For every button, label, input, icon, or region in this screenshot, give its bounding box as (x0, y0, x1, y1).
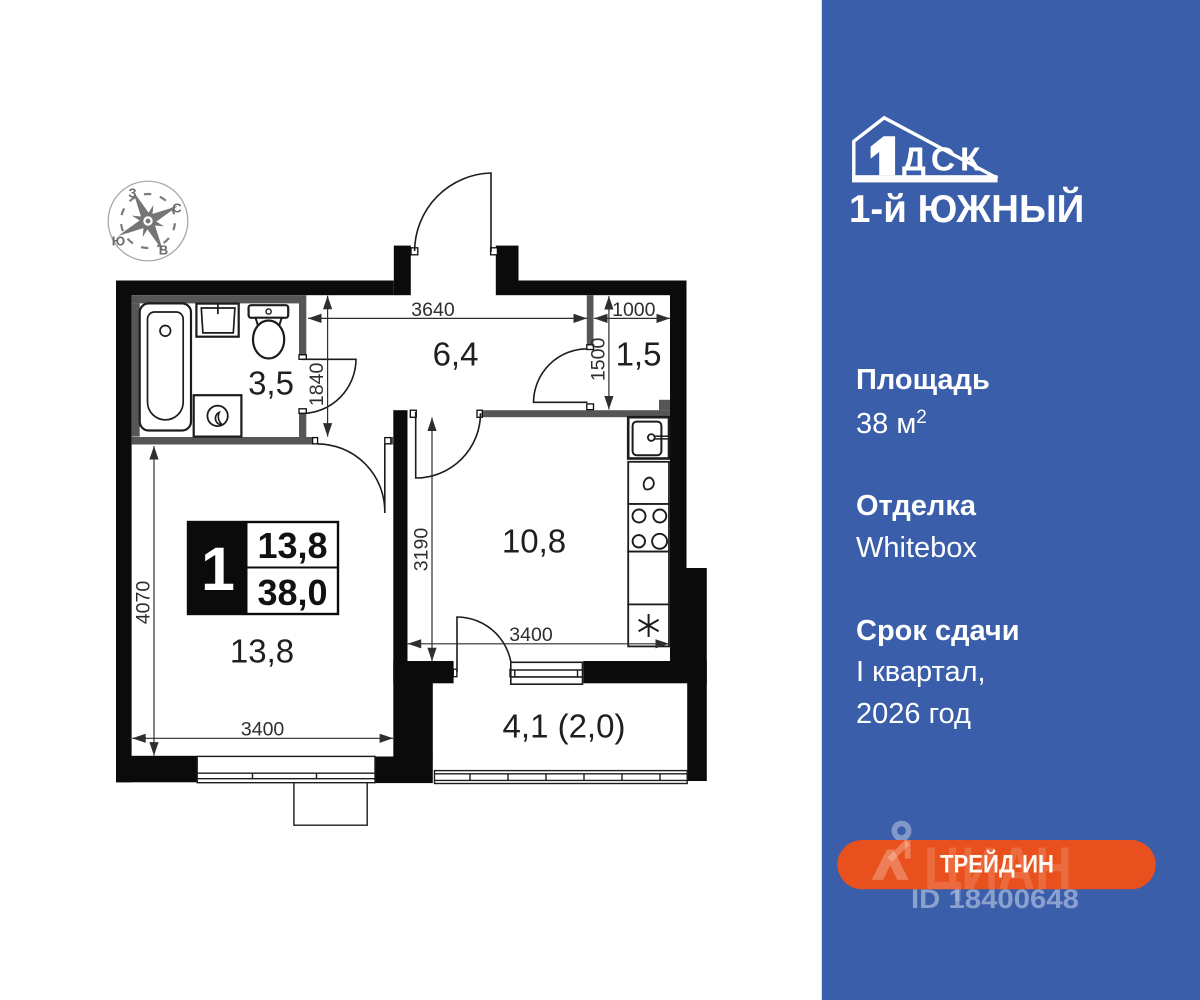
svg-text:З: З (128, 186, 136, 201)
svg-text:I квартал,: I квартал, (856, 656, 986, 688)
svg-text:4070: 4070 (133, 581, 155, 625)
svg-text:1500: 1500 (588, 338, 610, 382)
svg-text:1: 1 (201, 535, 235, 603)
svg-text:С: С (172, 201, 182, 216)
svg-text:3190: 3190 (411, 528, 433, 572)
svg-text:3400: 3400 (509, 624, 553, 646)
svg-text:1,5: 1,5 (616, 336, 662, 373)
svg-text:1000: 1000 (612, 299, 656, 321)
svg-text:10,8: 10,8 (502, 523, 566, 560)
svg-text:В: В (159, 243, 168, 258)
svg-text:38,0: 38,0 (257, 572, 327, 613)
svg-text:38 м2: 38 м2 (856, 407, 927, 440)
svg-text:13,8: 13,8 (230, 633, 294, 670)
svg-text:Ю: Ю (112, 234, 125, 249)
svg-text:6,4: 6,4 (433, 336, 479, 373)
svg-text:Отделка: Отделка (856, 490, 977, 522)
svg-text:3400: 3400 (241, 718, 285, 740)
svg-text:Срок сдачи: Срок сдачи (856, 615, 1020, 647)
svg-text:ДСК: ДСК (902, 141, 986, 178)
svg-text:Площадь: Площадь (856, 364, 990, 396)
svg-text:13,8: 13,8 (257, 525, 327, 566)
svg-text:3,5: 3,5 (248, 365, 294, 402)
svg-text:1-й ЮЖНЫЙ: 1-й ЮЖНЫЙ (849, 186, 1084, 231)
svg-text:1840: 1840 (306, 363, 328, 407)
svg-text:2026 год: 2026 год (856, 698, 971, 730)
svg-text:4,1 (2,0): 4,1 (2,0) (503, 708, 626, 745)
svg-text:ID 18400648: ID 18400648 (911, 884, 1079, 914)
svg-text:Whitebox: Whitebox (856, 532, 977, 564)
svg-text:3640: 3640 (411, 299, 455, 321)
